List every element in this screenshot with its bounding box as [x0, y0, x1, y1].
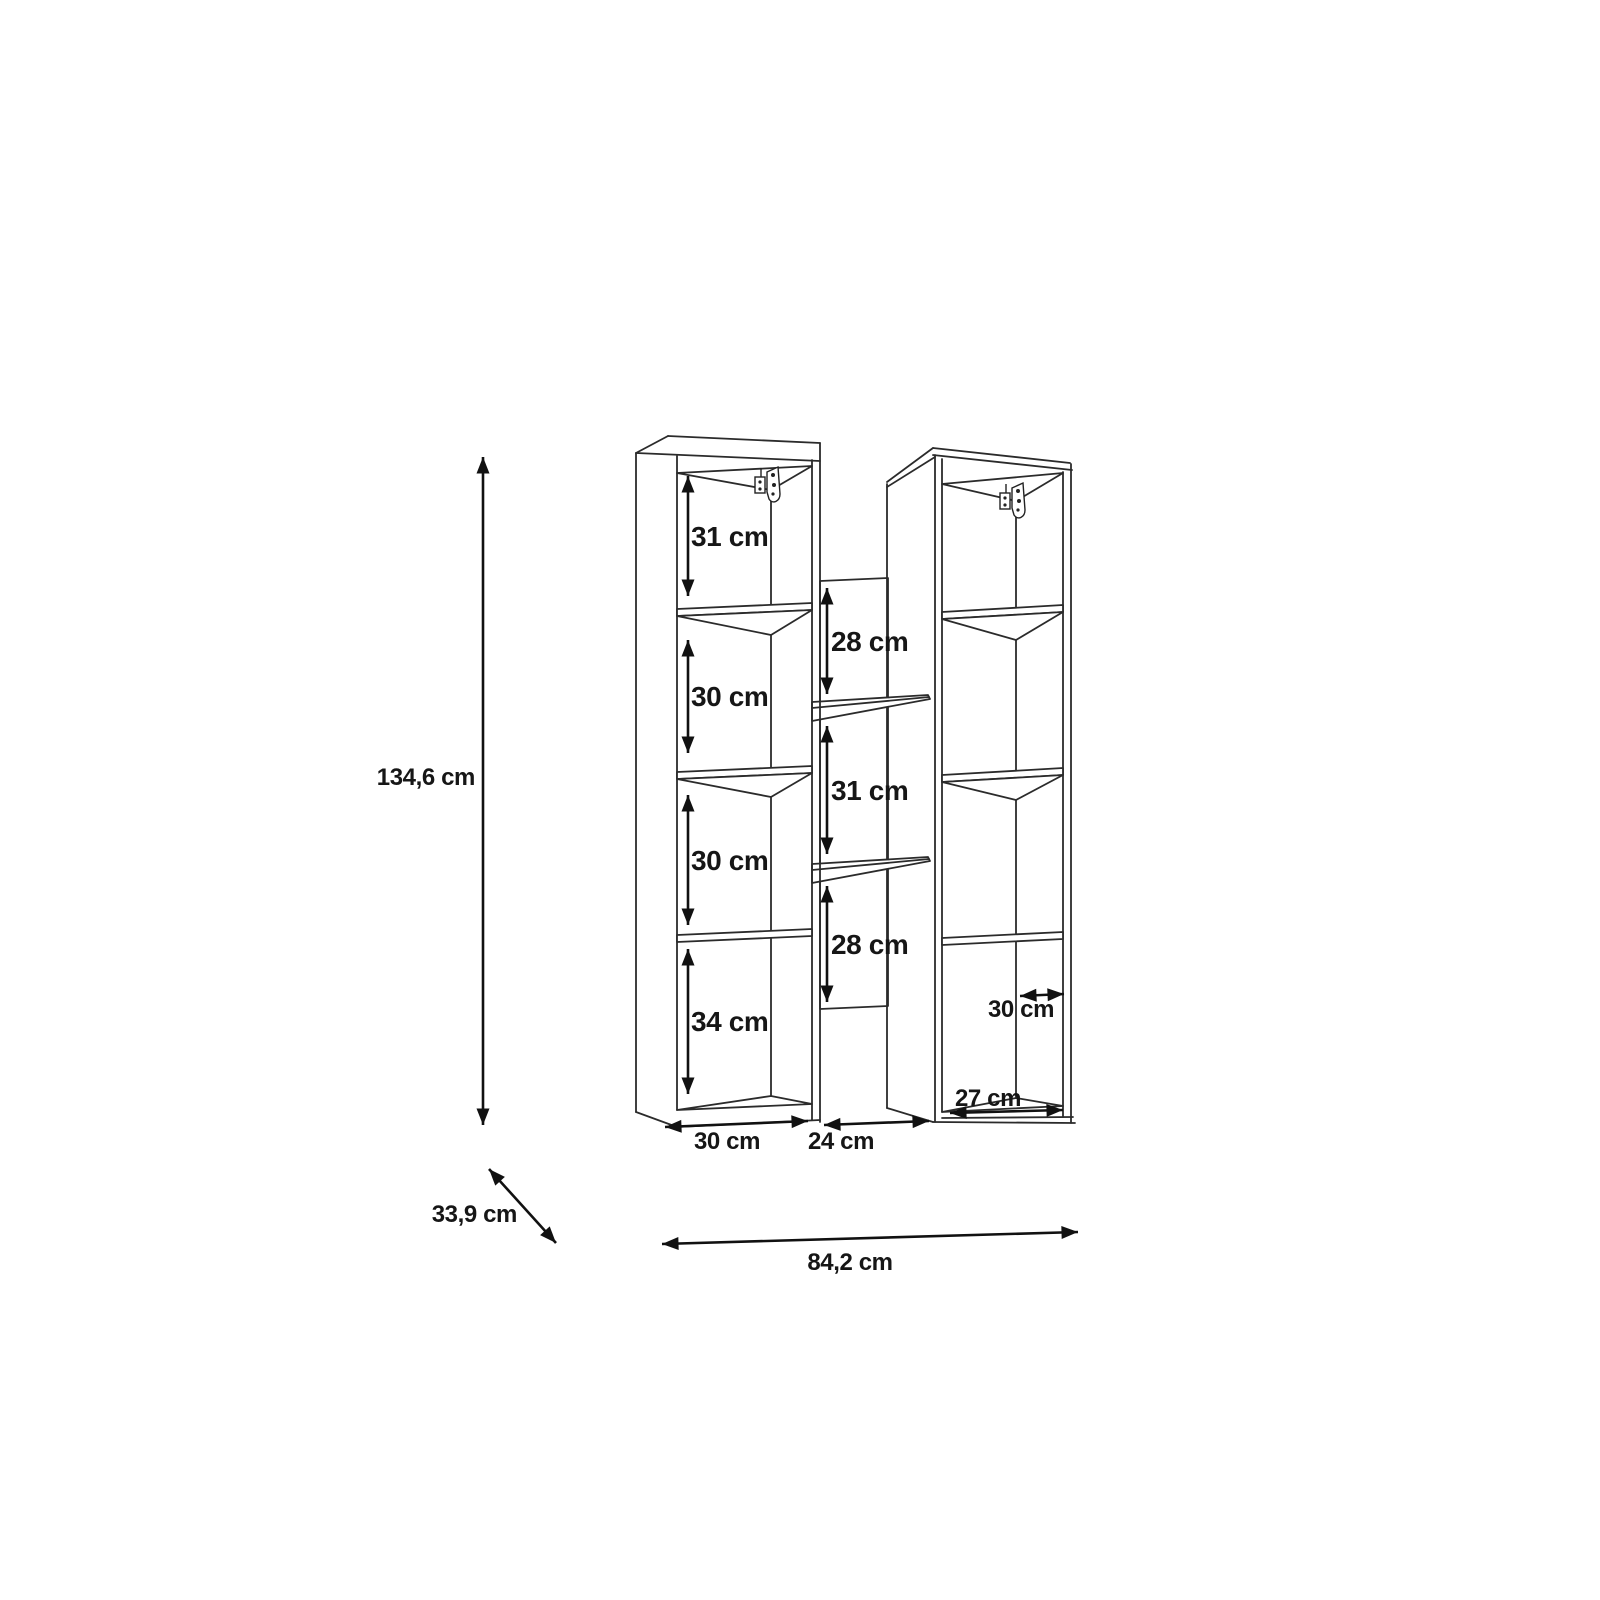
- dim-middle-cell-3-label: 28 cm: [831, 929, 908, 960]
- dim-right-width-label: 27 cm: [955, 1085, 1021, 1112]
- dim-right-depth-label: 30 cm: [988, 996, 1054, 1023]
- left-cabinet-shelf-3: [677, 929, 812, 942]
- dim-total-depth-label: 33,9 cm: [432, 1201, 517, 1228]
- right-cabinet-shelf-3: [942, 932, 1063, 945]
- dim-left-cell-3-label: 30 cm: [691, 845, 768, 876]
- left-cabinet-shelf-2: [677, 766, 812, 797]
- right-cabinet-shelf-1: [942, 605, 1063, 640]
- dimension-labels: 134,6 cm 33,9 cm 31 cm 30 cm 30 cm 34 cm…: [377, 521, 1054, 1276]
- dim-middle-cell-2-label: 31 cm: [831, 775, 908, 806]
- dim-total-width-label: 84,2 cm: [807, 1249, 892, 1276]
- dim-middle-cell-1-label: 28 cm: [831, 626, 908, 657]
- dim-total-height-label: 134,6 cm: [377, 764, 475, 791]
- furniture-dimension-diagram-page: 134,6 cm 33,9 cm 31 cm 30 cm 30 cm 34 cm…: [0, 0, 1600, 1600]
- dim-left-cell-1-label: 31 cm: [691, 521, 768, 552]
- shelf-unit-dimension-diagram: 134,6 cm 33,9 cm 31 cm 30 cm 30 cm 34 cm…: [0, 0, 1600, 1600]
- left-cabinet-shelf-1: [677, 603, 812, 635]
- dimension-arrows: [483, 457, 1078, 1244]
- dim-left-width-label: 30 cm: [694, 1128, 760, 1155]
- right-cabinet-shelf-2: [942, 768, 1063, 800]
- dim-middle-width-label: 24 cm: [808, 1128, 874, 1155]
- dim-left-cell-2-label: 30 cm: [691, 681, 768, 712]
- dim-left-cell-4-label: 34 cm: [691, 1006, 768, 1037]
